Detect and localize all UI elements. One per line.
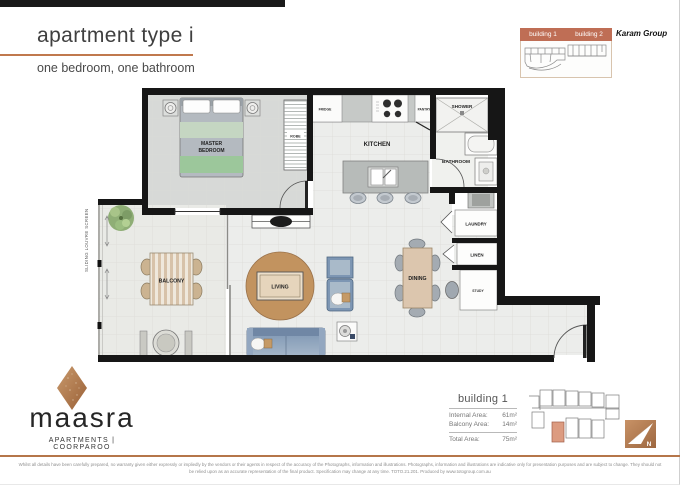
vanity bbox=[475, 158, 497, 185]
cooktop bbox=[372, 95, 408, 122]
divider bbox=[449, 408, 517, 409]
side-appliance bbox=[337, 322, 357, 341]
top-black-bar bbox=[0, 0, 285, 7]
dining-label: DINING bbox=[408, 276, 426, 282]
master-bedroom-label-2: BEDROOM bbox=[198, 148, 224, 154]
balcony-label: BALCONY bbox=[159, 279, 185, 285]
kitchen-island bbox=[343, 161, 428, 193]
plant bbox=[108, 205, 134, 231]
site-plan-thumbnail bbox=[520, 41, 612, 78]
dining-chair bbox=[409, 307, 425, 317]
study-chair bbox=[446, 282, 459, 299]
area-row-internal: Internal Area: 61m² bbox=[449, 411, 517, 420]
armchair bbox=[327, 257, 353, 311]
master-bedroom-label-1: MASTER bbox=[201, 141, 223, 147]
building2-tab[interactable]: building 2 bbox=[566, 28, 612, 41]
north-arrow: N bbox=[625, 420, 656, 448]
brand-tagline: APARTMENTS | COORPAROO bbox=[22, 437, 142, 451]
area-value: 14m² bbox=[502, 420, 517, 429]
site-plan-drawing bbox=[521, 41, 611, 75]
area-value: 75m² bbox=[502, 435, 517, 444]
bed bbox=[180, 98, 243, 177]
brand-name: maasra bbox=[22, 402, 142, 434]
laundry-label: LAUNDRY bbox=[465, 222, 486, 227]
linen-label: LINEN bbox=[470, 253, 483, 258]
fridge-label: FRIDGE bbox=[319, 108, 333, 112]
area-row-total: Total Area: 75m² bbox=[449, 435, 517, 444]
building-selector: building 1 building 2 bbox=[520, 28, 612, 78]
disclaimer-line2: be relied upon as an accurate representa… bbox=[0, 469, 680, 476]
area-building-name: building 1 bbox=[449, 393, 517, 405]
title-underline bbox=[0, 54, 193, 56]
study-label: STUDY bbox=[472, 289, 484, 293]
dining-chair bbox=[409, 239, 425, 249]
north-letter: N bbox=[647, 441, 652, 448]
footer-rule bbox=[0, 455, 680, 457]
floor-plan: ROBE MASTER BEDROOM FRIDGE bbox=[80, 82, 620, 373]
divider bbox=[449, 432, 517, 433]
tv-unit bbox=[252, 215, 310, 228]
sofa bbox=[247, 328, 325, 357]
area-label: Internal Area: bbox=[449, 411, 488, 420]
bathroom-label: BATHROOM bbox=[442, 159, 470, 165]
page-title: apartment type i bbox=[37, 24, 194, 48]
area-value: 61m² bbox=[502, 411, 517, 420]
floors bbox=[98, 95, 587, 355]
area-label: Balcony Area: bbox=[449, 420, 489, 429]
kitchen-label: KITCHEN bbox=[364, 142, 391, 148]
page-subtitle: one bedroom, one bathroom bbox=[37, 61, 195, 75]
building-selector-tabs: building 1 building 2 bbox=[520, 28, 612, 41]
disclaimer-line1: Whilst all details have been carefully p… bbox=[0, 462, 680, 469]
highlighted-unit bbox=[552, 422, 564, 442]
disclaimer: Whilst all details have been carefully p… bbox=[0, 462, 680, 475]
building1-tab[interactable]: building 1 bbox=[520, 28, 566, 41]
robe-label: ROBE bbox=[290, 135, 301, 139]
bar-stools bbox=[350, 193, 421, 204]
pantry-label: PANTRY bbox=[418, 108, 432, 112]
area-info-panel: building 1 Internal Area: 61m² Balcony A… bbox=[449, 393, 517, 444]
bedroom-window bbox=[175, 208, 220, 215]
area-label: Total Area: bbox=[449, 435, 480, 444]
master-bedroom: ROBE MASTER BEDROOM bbox=[163, 98, 307, 177]
sliding-screen-label: SLIDING LOUVRE SCREEN bbox=[84, 208, 89, 272]
living-label: LIVING bbox=[271, 285, 288, 291]
sofa-cushion bbox=[251, 338, 265, 350]
shower-label: SHOWER bbox=[452, 104, 473, 109]
bedside-lamp-right bbox=[247, 103, 258, 114]
entry-door-leaf bbox=[583, 325, 587, 358]
page: apartment type i one bedroom, one bathro… bbox=[0, 0, 680, 485]
floorplate-thumbnail bbox=[526, 386, 626, 448]
bedside-lamp-left bbox=[165, 103, 176, 114]
area-row-balcony: Balcony Area: 14m² bbox=[449, 420, 517, 429]
developer-logo: Karam Group bbox=[616, 29, 667, 38]
tv bbox=[270, 216, 292, 227]
